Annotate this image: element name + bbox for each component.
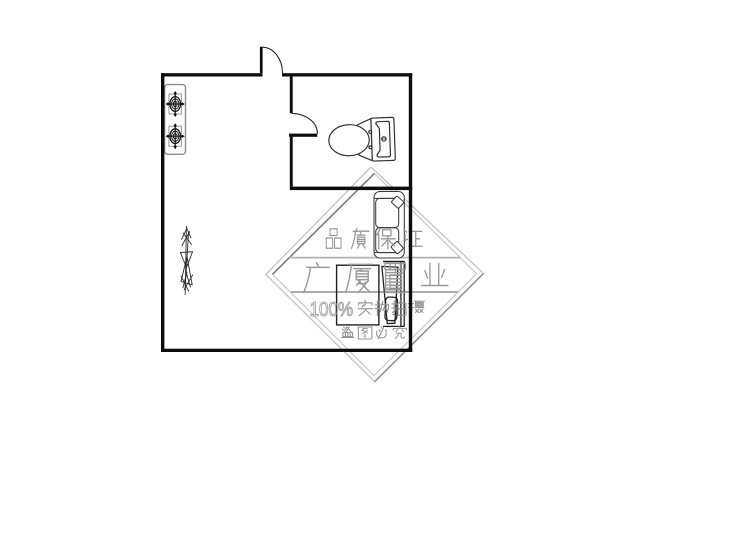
svg-text:100%: 100% [310,298,353,321]
